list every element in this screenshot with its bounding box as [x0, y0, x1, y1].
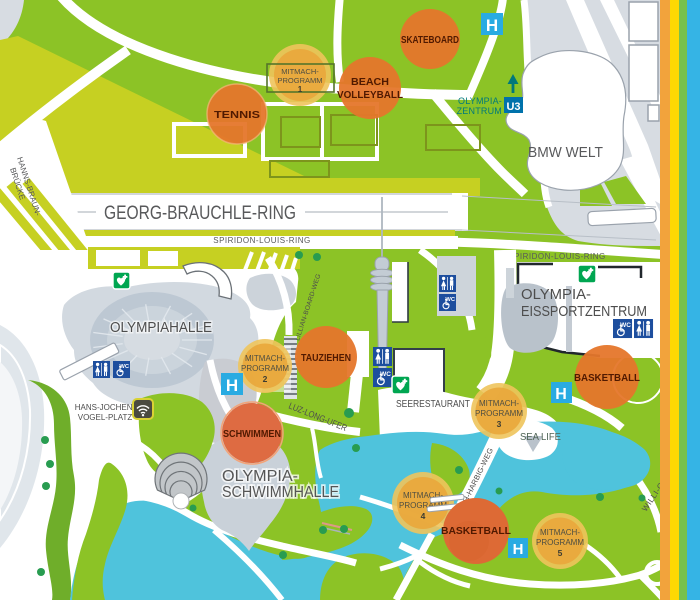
- svg-text:SPIRIDON-LOUIS-RING: SPIRIDON-LOUIS-RING: [213, 236, 311, 245]
- svg-text:5: 5: [558, 548, 563, 558]
- svg-text:PROGRAMM: PROGRAMM: [536, 538, 584, 547]
- svg-text:BASKETBALL: BASKETBALL: [441, 525, 512, 537]
- svg-text:2: 2: [263, 374, 268, 384]
- svg-text:MITMACH-: MITMACH-: [245, 354, 285, 363]
- svg-text:OLYMPIA-: OLYMPIA-: [458, 96, 502, 106]
- svg-text:VOLLEYBALL: VOLLEYBALL: [337, 89, 404, 101]
- svg-text:TENNIS: TENNIS: [214, 109, 260, 121]
- svg-text:BEACH: BEACH: [351, 76, 389, 88]
- svg-text:PROGRAMM: PROGRAMM: [278, 76, 323, 85]
- svg-text:SKATEBOARD: SKATEBOARD: [401, 34, 459, 46]
- svg-text:PROGRAMM: PROGRAMM: [475, 409, 523, 418]
- svg-text:4: 4: [421, 511, 426, 521]
- svg-text:TAUZIEHEN: TAUZIEHEN: [301, 352, 351, 364]
- svg-text:H: H: [486, 16, 498, 35]
- svg-text:BMW WELT: BMW WELT: [528, 144, 603, 161]
- svg-text:H: H: [513, 541, 524, 558]
- svg-text:U3: U3: [506, 101, 520, 113]
- svg-text:MITMACH-: MITMACH-: [479, 399, 519, 408]
- svg-text:H: H: [555, 386, 567, 403]
- svg-text:SPIRIDON-LOUIS-RING: SPIRIDON-LOUIS-RING: [508, 252, 606, 261]
- svg-text:H: H: [226, 376, 238, 395]
- svg-text:ZENTRUM: ZENTRUM: [457, 106, 502, 116]
- svg-text:MITMACH-: MITMACH-: [540, 528, 580, 537]
- svg-text:HANS-JOCHEN-: HANS-JOCHEN-: [75, 403, 136, 412]
- svg-text:OLYMPIA-: OLYMPIA-: [222, 468, 298, 485]
- svg-text:VOGEL-PLATZ: VOGEL-PLATZ: [78, 413, 133, 422]
- svg-text:GEORG-BRAUCHLE-RING: GEORG-BRAUCHLE-RING: [104, 203, 296, 224]
- svg-text:OLYMPIA-: OLYMPIA-: [521, 286, 591, 303]
- svg-text:BASKETBALL: BASKETBALL: [574, 372, 641, 384]
- svg-text:OLYMPIAHALLE: OLYMPIAHALLE: [110, 319, 212, 336]
- svg-text:SCHWIMMHALLE: SCHWIMMHALLE: [222, 484, 339, 501]
- svg-text:EISSPORTZENTRUM: EISSPORTZENTRUM: [521, 303, 647, 320]
- svg-text:MITMACH-: MITMACH-: [281, 67, 319, 76]
- svg-text:SEERESTAURANT: SEERESTAURANT: [396, 399, 470, 410]
- svg-text:PROGRAMM: PROGRAMM: [241, 364, 289, 373]
- svg-text:1: 1: [298, 85, 303, 94]
- svg-text:SCHWIMMEN: SCHWIMMEN: [223, 428, 281, 440]
- svg-text:SEA LIFE: SEA LIFE: [520, 431, 561, 443]
- svg-text:3: 3: [497, 419, 502, 429]
